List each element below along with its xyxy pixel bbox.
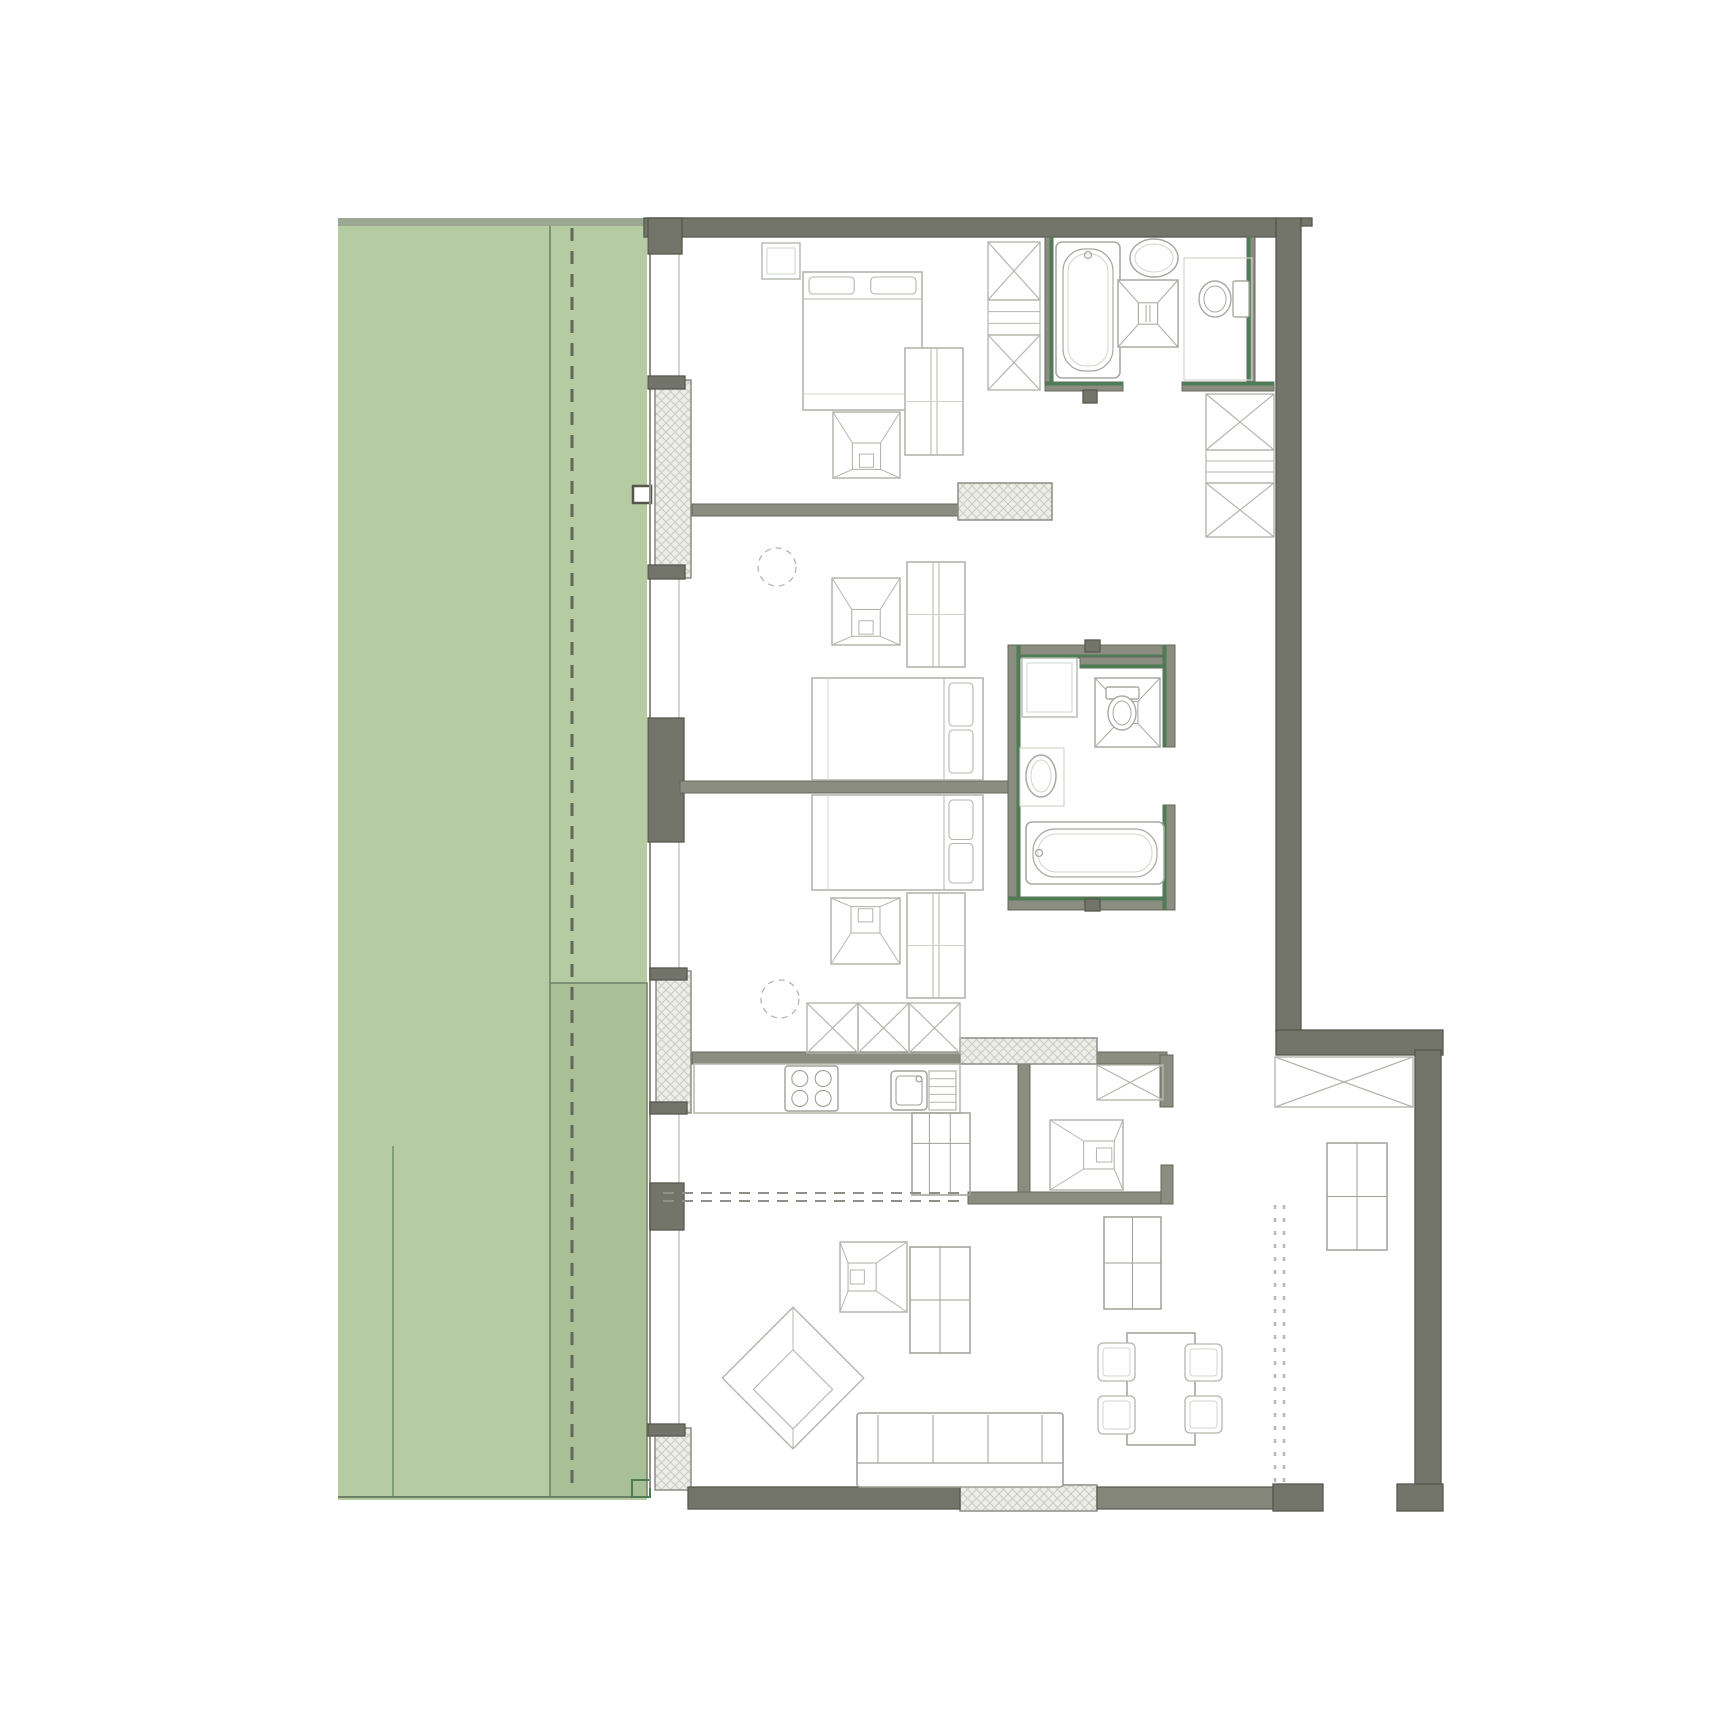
wall-bottom-mid: [1097, 1487, 1273, 1509]
entry-corner-pier: [1397, 1484, 1443, 1511]
terrace-covered-zone: [550, 983, 647, 1497]
bath1-vanity: [1184, 258, 1252, 380]
nook-wall-right: [1161, 1165, 1173, 1204]
bath1-wall-bottom-right-green: [1182, 382, 1274, 386]
armchair: [832, 578, 900, 645]
double-bed-1: [803, 272, 922, 410]
window-cap: [648, 376, 685, 389]
hall-closet-shelves: [1206, 450, 1274, 483]
partition-kitchen-hall: [1097, 1052, 1167, 1064]
window-bedroom1: [655, 380, 691, 578]
partition-bed2-bed3: [680, 781, 1010, 793]
wall-right-lower: [1415, 1050, 1441, 1487]
wall-tick: [1301, 218, 1312, 226]
window-cap: [650, 968, 687, 980]
bath1-wall-bottom-left-green: [1045, 382, 1123, 386]
window-kitchen: [656, 971, 691, 1113]
bath2-anchor-top: [1085, 640, 1100, 652]
wall-top: [644, 218, 1276, 237]
terrace-door-handle: [633, 486, 651, 503]
bath1-door-stub: [1083, 390, 1097, 403]
bath1-wall-left-green: [1050, 237, 1054, 390]
bath2-anchor-bottom: [1085, 899, 1100, 911]
bath2-cabinet: [1022, 658, 1077, 717]
door-lintel-bedroom1: [958, 483, 1052, 520]
washbasin: [1130, 239, 1178, 277]
facade-pier-top: [648, 218, 682, 254]
layer-terrace: [338, 218, 651, 1500]
drawer-unit: [929, 1071, 956, 1110]
closet-shelves: [988, 300, 1040, 335]
entry-door-pier: [1273, 1484, 1323, 1511]
window-living-bottom: [960, 1485, 1097, 1511]
lounge-chair: [722, 1307, 863, 1448]
armchair: [833, 412, 900, 478]
floor-plan-canvas: [0, 0, 1718, 1718]
window-cap: [650, 1102, 687, 1114]
window-cap: [648, 565, 685, 579]
bathtub: [1026, 822, 1164, 884]
double-bed-3: [812, 795, 983, 890]
floor-plan: [0, 0, 1718, 1718]
facade-pier-mid: [648, 718, 684, 842]
facade-pier-low: [650, 1183, 684, 1230]
bath2-shower-partition-green: [1080, 665, 1163, 669]
bathtub: [1056, 242, 1120, 378]
window-cap: [648, 1424, 685, 1436]
window-living-left: [655, 1428, 691, 1490]
bath2-wall-right-upper-green: [1163, 645, 1167, 747]
cooktop: [785, 1066, 838, 1111]
nook-wall-left: [1018, 1064, 1030, 1204]
sofa: [857, 1413, 1063, 1487]
terrace-top-band: [338, 218, 647, 226]
door-lintel-kitchen: [960, 1038, 1097, 1064]
wall-bottom-left: [688, 1487, 960, 1509]
floor-lamp: [761, 980, 799, 1018]
layer-fixtures: [1020, 239, 1252, 884]
nook-wall-bottom: [968, 1192, 1173, 1204]
partition-bed3-kitchen: [692, 1052, 960, 1064]
wall-right-upper: [1276, 218, 1301, 1032]
double-bed-2: [812, 678, 983, 780]
armchair: [831, 898, 900, 964]
kitchen-tall-unit: [912, 1113, 970, 1195]
partition-bed1-bed2: [692, 504, 960, 516]
toilet-tank: [1233, 281, 1249, 317]
floor-lamp: [758, 548, 796, 586]
